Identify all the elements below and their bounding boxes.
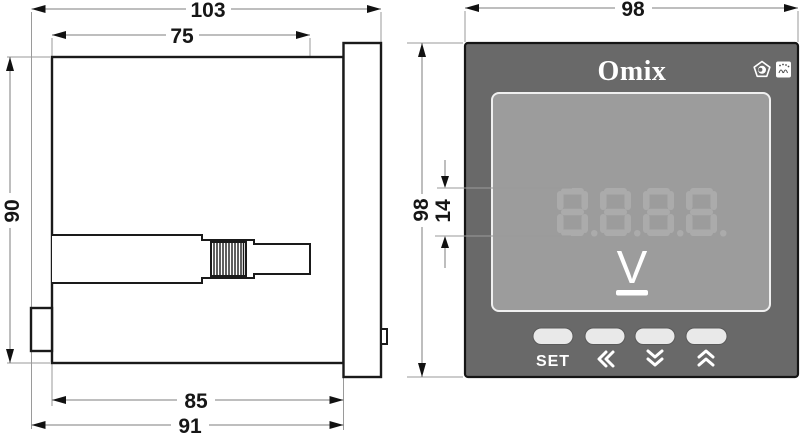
digit-segment [557,214,564,233]
up-button [686,328,727,345]
digit-segment [582,191,589,210]
meter-case-side [52,57,344,363]
unit-underline [616,290,648,296]
dim-label-91: 91 [178,415,202,434]
side-view: 103 75 90 85 [1,0,387,434]
digit-segment [690,188,713,195]
digit-segment [647,230,670,237]
dim-label-90: 90 [1,199,24,222]
digit-segment [557,191,564,210]
dim-label-14: 14 [432,199,455,223]
digit-segment [600,214,607,233]
digit-segment [720,230,727,237]
digit-segment [711,191,718,210]
pattern-badge-icon [776,62,791,78]
digit-segment [604,188,627,195]
terminal-block [31,308,52,351]
digit-segment [604,209,627,216]
dim-case-height: 90 [1,57,24,363]
dim-label-98-width: 98 [621,0,645,21]
digit-segment [668,191,675,210]
digit-segment [604,230,627,237]
down-button [635,328,675,345]
digit-segment [643,214,650,233]
dim-case-depth: 85 [52,390,344,413]
dim-depth-behind-panel: 75 [52,25,310,48]
front-bezel-side [344,43,382,377]
digit-segment [561,230,584,237]
bezel-tab [381,329,387,344]
left-button [585,328,625,345]
digit-segment [600,191,607,210]
dim-label-103: 103 [190,0,225,22]
dim-label-85: 85 [184,390,208,413]
digit-segment [643,191,650,210]
digit-segment [647,209,670,216]
digit-segment [634,230,641,237]
digit-segment [591,230,598,237]
brand-logo: Omix [598,56,667,87]
dim-overall-depth: 103 [32,0,382,22]
digit-segment [677,230,684,237]
dim-depth-with-terminals: 91 [32,415,344,434]
panel-meter-dimension-drawing: 103 75 90 85 [0,0,800,434]
set-button-label: SET [536,353,570,370]
digit-segment [686,191,693,210]
digit-segment [561,209,584,216]
dim-bezel-width: 98 [465,0,798,21]
digit-segment [686,214,693,233]
digit-segment [625,191,632,210]
digit-segment [561,188,584,195]
dim-bezel-height: 98 [410,43,433,377]
dim-label-75: 75 [170,25,194,48]
digit-segment [647,188,670,195]
unit-label: V [617,241,648,293]
front-view: Omix V SET [407,0,798,377]
set-button [533,328,573,345]
digit-segment [690,209,713,216]
drawing-canvas: 103 75 90 85 [0,0,800,434]
digit-segment [690,230,713,237]
dim-label-98-height: 98 [410,198,433,222]
